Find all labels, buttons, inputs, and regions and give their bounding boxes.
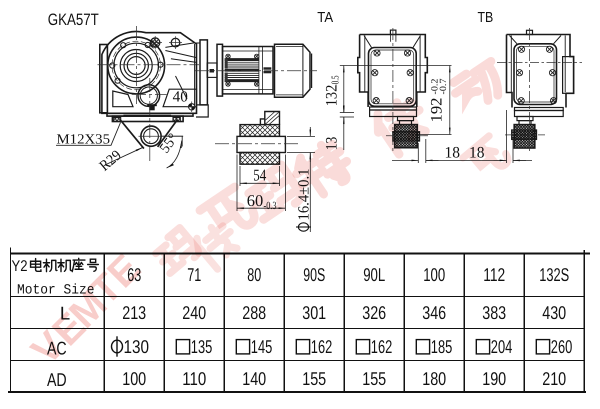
svg-text:162: 162 [311, 336, 333, 357]
svg-text:213: 213 [122, 302, 146, 323]
svg-text:132S: 132S [539, 264, 569, 285]
svg-text:Y2: Y2 [12, 258, 28, 275]
svg-text:-0.7: -0.7 [439, 78, 449, 94]
svg-text:132: 132 [324, 85, 341, 107]
svg-text:110: 110 [182, 368, 206, 389]
svg-text:-0.5: -0.5 [331, 76, 342, 87]
svg-text:155: 155 [362, 368, 386, 389]
svg-text:204: 204 [491, 336, 513, 357]
svg-text:90S: 90S [303, 264, 325, 285]
svg-text:18: 18 [445, 145, 461, 162]
svg-text:40: 40 [173, 89, 188, 106]
svg-text:100: 100 [122, 368, 146, 389]
svg-text:R29: R29 [97, 148, 125, 175]
svg-text:100: 100 [423, 264, 445, 285]
svg-text:90L: 90L [363, 264, 385, 285]
svg-text:180: 180 [422, 368, 446, 389]
svg-text:TA: TA [317, 10, 333, 26]
svg-text:155: 155 [302, 368, 326, 389]
svg-text:288: 288 [242, 302, 266, 323]
svg-text:140: 140 [242, 368, 266, 389]
svg-text:240: 240 [182, 302, 206, 323]
svg-text:112: 112 [483, 264, 505, 285]
svg-text:TB: TB [478, 10, 494, 26]
svg-text:71: 71 [187, 264, 201, 285]
svg-text:326: 326 [362, 302, 386, 323]
svg-text:190: 190 [482, 368, 506, 389]
svg-text:AD: AD [47, 369, 67, 390]
svg-text:210: 210 [542, 368, 566, 389]
svg-text:192: 192 [429, 98, 446, 123]
svg-text:145: 145 [251, 336, 272, 357]
svg-text:346: 346 [422, 302, 446, 323]
svg-text:80: 80 [247, 264, 261, 285]
svg-text:162: 162 [371, 336, 393, 357]
svg-text:260: 260 [551, 336, 573, 357]
svg-text:185: 185 [431, 336, 453, 357]
svg-text:135: 135 [191, 336, 213, 357]
svg-text:GKA57T: GKA57T [48, 11, 99, 29]
svg-text:383: 383 [482, 302, 506, 323]
svg-text:130: 130 [124, 336, 150, 357]
svg-text:430: 430 [542, 302, 566, 323]
svg-text:301: 301 [302, 302, 326, 323]
svg-text:M12X35: M12X35 [57, 133, 111, 148]
